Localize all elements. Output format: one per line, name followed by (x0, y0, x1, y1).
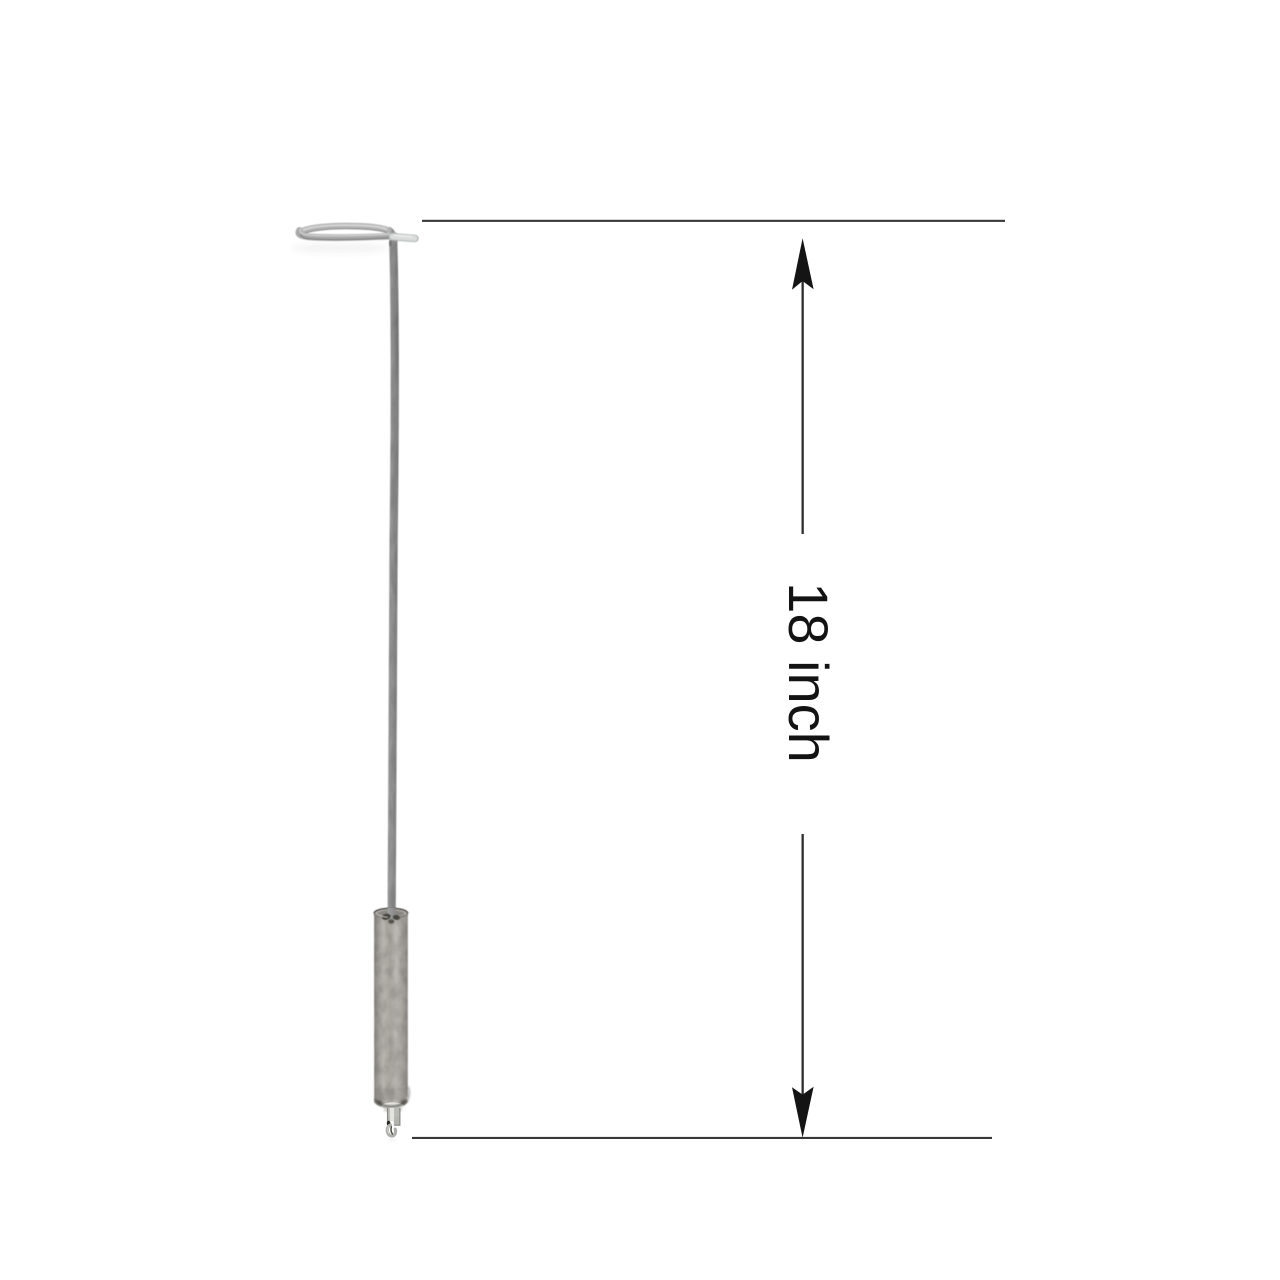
svg-text:18 inch: 18 inch (777, 582, 840, 763)
